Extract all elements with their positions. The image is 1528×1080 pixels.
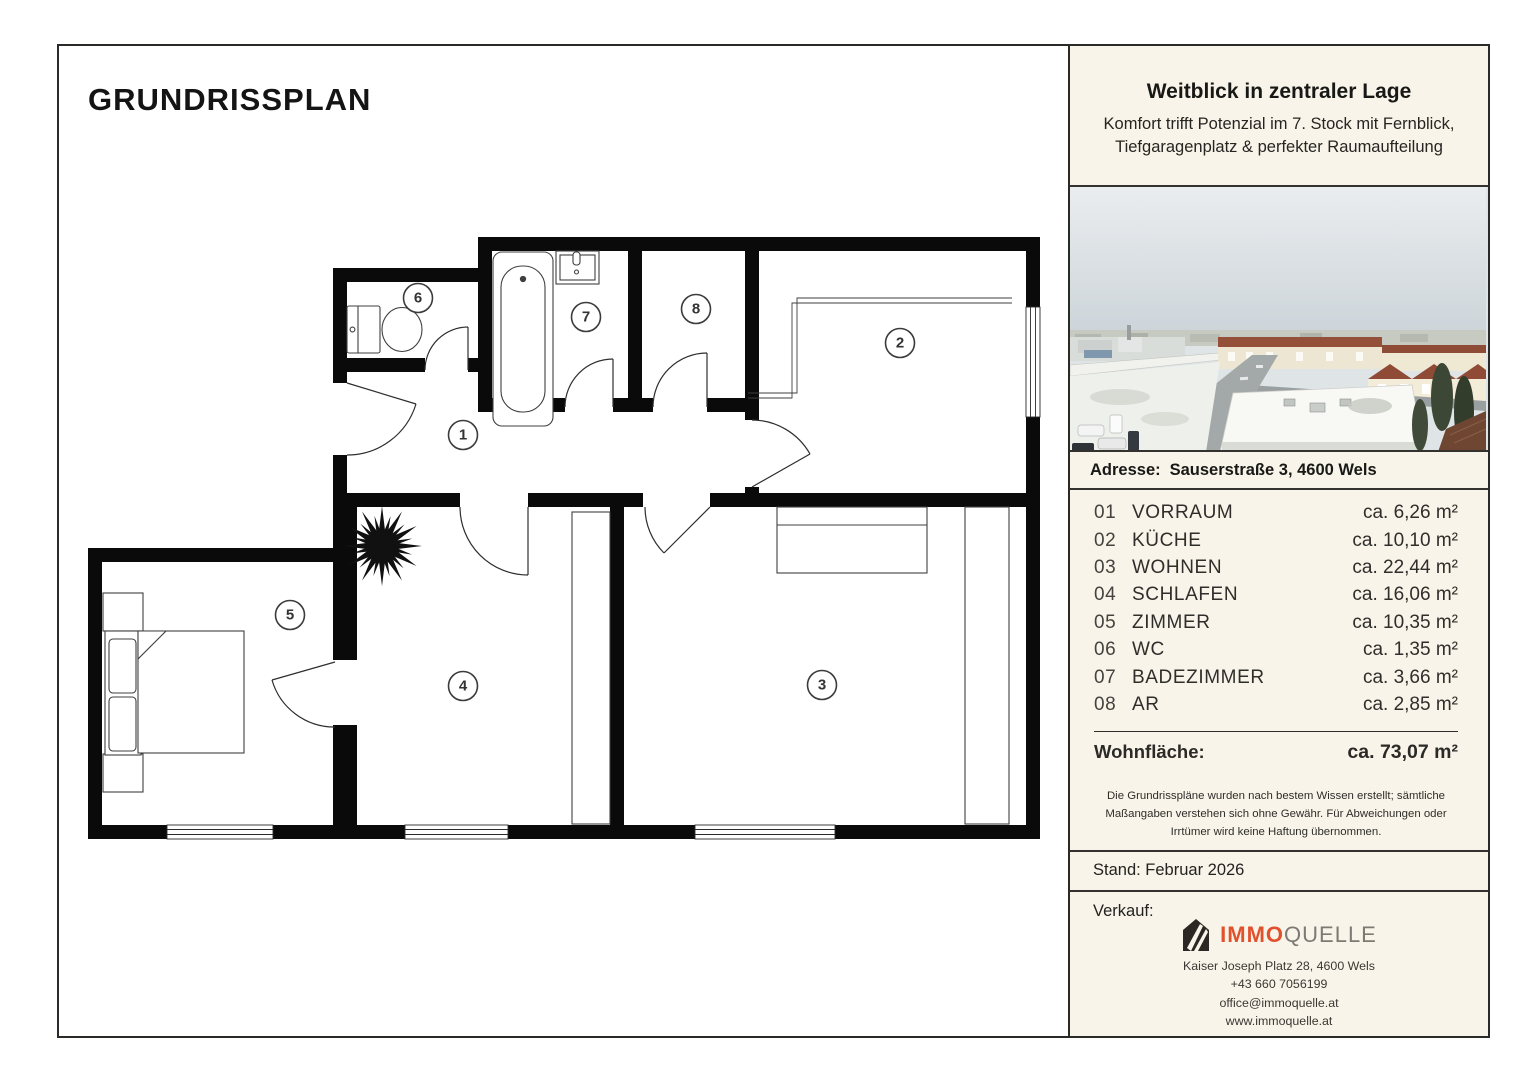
page-frame: GRUNDRISSPLAN (57, 44, 1490, 1038)
sink-icon (556, 251, 599, 284)
sale-label: Verkauf: (1093, 902, 1154, 921)
listing-header: Weitblick in zentraler Lage Komfort trif… (1070, 46, 1488, 187)
toilet-icon (347, 306, 422, 353)
contact-block: Kaiser Joseph Platz 28, 4600 Wels +43 66… (1070, 957, 1488, 1031)
room-marker: 2 (886, 329, 915, 358)
svg-text:1: 1 (459, 427, 467, 444)
contact-address: Kaiser Joseph Platz 28, 4600 Wels (1070, 957, 1488, 976)
room-marker: 4 (449, 672, 478, 701)
room-row: 05ZIMMERca. 10,35 m² (1094, 612, 1458, 639)
svg-text:8: 8 (692, 301, 700, 318)
svg-text:6: 6 (414, 290, 422, 307)
total-area-value: ca. 73,07 m² (1347, 741, 1458, 764)
svg-text:2: 2 (896, 335, 904, 352)
date-bar: Stand: Februar 2026 (1070, 852, 1488, 892)
sofa-icon (777, 507, 927, 573)
disclaimer-text: Die Grundrisspläne wurden nach bestem Wi… (1094, 788, 1458, 841)
contact-website[interactable]: www.immoquelle.at (1070, 1012, 1488, 1031)
room-marker: 7 (572, 303, 601, 332)
company-logo: IMMOQUELLE (1070, 918, 1488, 952)
room-row: 04SCHLAFENca. 16,06 m² (1094, 584, 1458, 611)
room-marker: 1 (449, 421, 478, 450)
room-row: 03WOHNENca. 22,44 m² (1094, 557, 1458, 584)
floorplan-drawing: 1 2 3 4 5 6 7 8 (85, 230, 1045, 860)
address-label: Adresse: (1090, 461, 1161, 480)
contact-email[interactable]: office@immoquelle.at (1070, 994, 1488, 1013)
immoquelle-house-icon (1181, 918, 1211, 952)
room-row: 07BADEZIMMERca. 3,66 m² (1094, 667, 1458, 694)
address-value: Sauserstraße 3, 4600 Wels (1170, 461, 1377, 480)
furniture (103, 251, 1012, 824)
bed-icon (103, 593, 244, 792)
svg-text:3: 3 (818, 677, 826, 694)
listing-subtitle: Komfort trifft Potenzial im 7. Stock mit… (1070, 113, 1488, 160)
date-value: Stand: Februar 2026 (1093, 861, 1244, 880)
info-panel: Weitblick in zentraler Lage Komfort trif… (1068, 46, 1488, 1036)
page-title: GRUNDRISSPLAN (88, 82, 371, 118)
svg-text:7: 7 (582, 309, 590, 326)
room-row: 02KÜCHEca. 10,10 m² (1094, 530, 1458, 557)
sale-section: Verkauf: IMMOQUELLE Kaiser Joseph Platz … (1070, 892, 1488, 1036)
room-marker: 8 (682, 295, 711, 324)
svg-text:4: 4 (459, 678, 468, 695)
contact-phone[interactable]: +43 660 7056199 (1070, 975, 1488, 994)
room-marker: 6 (404, 284, 433, 313)
room-marker: 5 (276, 601, 305, 630)
svg-text:5: 5 (286, 607, 294, 624)
room-row: 06WCca. 1,35 m² (1094, 639, 1458, 666)
logo-immo: IMMO (1220, 922, 1284, 947)
wardrobe-room3 (965, 507, 1009, 824)
property-photo (1070, 187, 1488, 453)
listing-title: Weitblick in zentraler Lage (1070, 80, 1488, 104)
logo-quelle: QUELLE (1284, 922, 1377, 947)
total-area-row: Wohnfläche: ca. 73,07 m² (1094, 731, 1458, 764)
room-list: 01VORRAUMca. 6,26 m² 02KÜCHEca. 10,10 m²… (1070, 490, 1488, 852)
room-row: 01VORRAUMca. 6,26 m² (1094, 502, 1458, 529)
floorplan-panel: GRUNDRISSPLAN (59, 46, 1068, 1036)
wardrobe-room4 (572, 512, 610, 824)
kitchen-counter (748, 298, 1012, 398)
bathtub-icon (493, 252, 553, 426)
total-area-label: Wohnfläche: (1094, 741, 1205, 763)
room-row: 08ARca. 2,85 m² (1094, 694, 1458, 721)
room-marker: 3 (808, 671, 837, 700)
address-bar: Adresse: Sauserstraße 3, 4600 Wels (1070, 452, 1488, 490)
